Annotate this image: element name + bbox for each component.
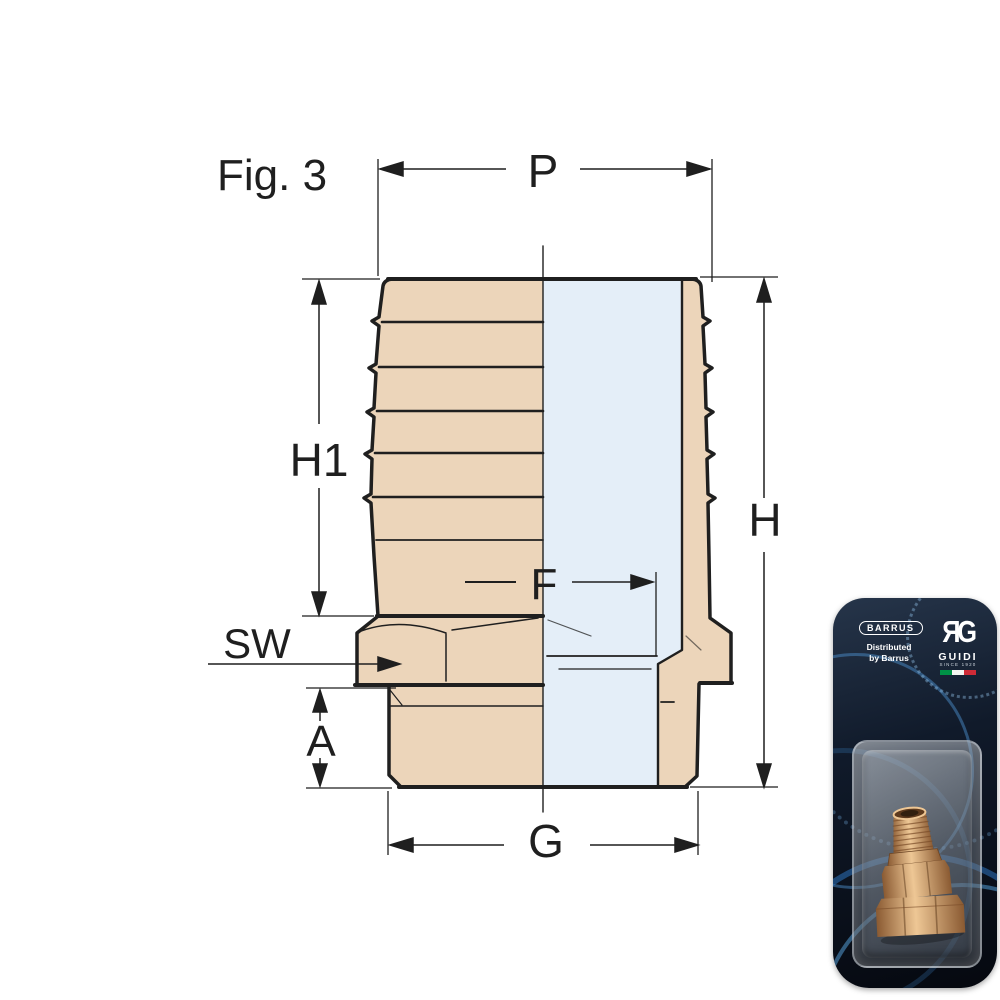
dim-label-sw: SW bbox=[223, 620, 291, 667]
distributor-line2: by Barrus bbox=[839, 653, 939, 664]
dim-label-a: A bbox=[306, 717, 336, 766]
arrowhead bbox=[675, 838, 698, 852]
arrowhead bbox=[313, 764, 327, 786]
guidi-logo-name: GUIDI bbox=[929, 652, 987, 662]
arrowhead bbox=[757, 764, 771, 787]
guidi-monogram-icon: ЯG bbox=[934, 612, 982, 652]
arrowhead bbox=[313, 690, 327, 712]
distributor-text: Distributed by Barrus bbox=[839, 642, 939, 663]
dim-label-h1: H1 bbox=[290, 434, 349, 486]
dim-label-h: H bbox=[748, 494, 781, 546]
figure-label: Fig. 3 bbox=[217, 151, 327, 200]
arrowhead bbox=[312, 281, 326, 304]
arrowhead bbox=[380, 162, 403, 176]
arrowhead bbox=[312, 592, 326, 615]
barrus-brand-badge: BARRUS bbox=[859, 621, 923, 635]
guidi-logo: ЯG GUIDI SINCE 1920 bbox=[929, 612, 987, 675]
arrowhead bbox=[687, 162, 710, 176]
arrowhead bbox=[390, 838, 413, 852]
italian-flag-icon bbox=[940, 670, 976, 675]
dim-label-p: P bbox=[528, 145, 559, 197]
thread-exterior bbox=[388, 687, 543, 787]
brass-fitting-photo bbox=[858, 795, 973, 955]
distributor-line1: Distributed bbox=[839, 642, 939, 653]
hex-nut-exterior bbox=[356, 616, 543, 685]
page: Fig. 3 P H1 H F SW A G BARRUS Distribute… bbox=[0, 0, 1000, 1000]
product-package: BARRUS Distributed by Barrus ЯG GUIDI SI… bbox=[833, 598, 997, 988]
hose-barb-exterior bbox=[364, 279, 543, 616]
dim-label-g: G bbox=[528, 815, 564, 867]
blister-window bbox=[852, 740, 982, 968]
dim-label-f: F bbox=[531, 560, 558, 609]
arrowhead bbox=[757, 279, 771, 302]
